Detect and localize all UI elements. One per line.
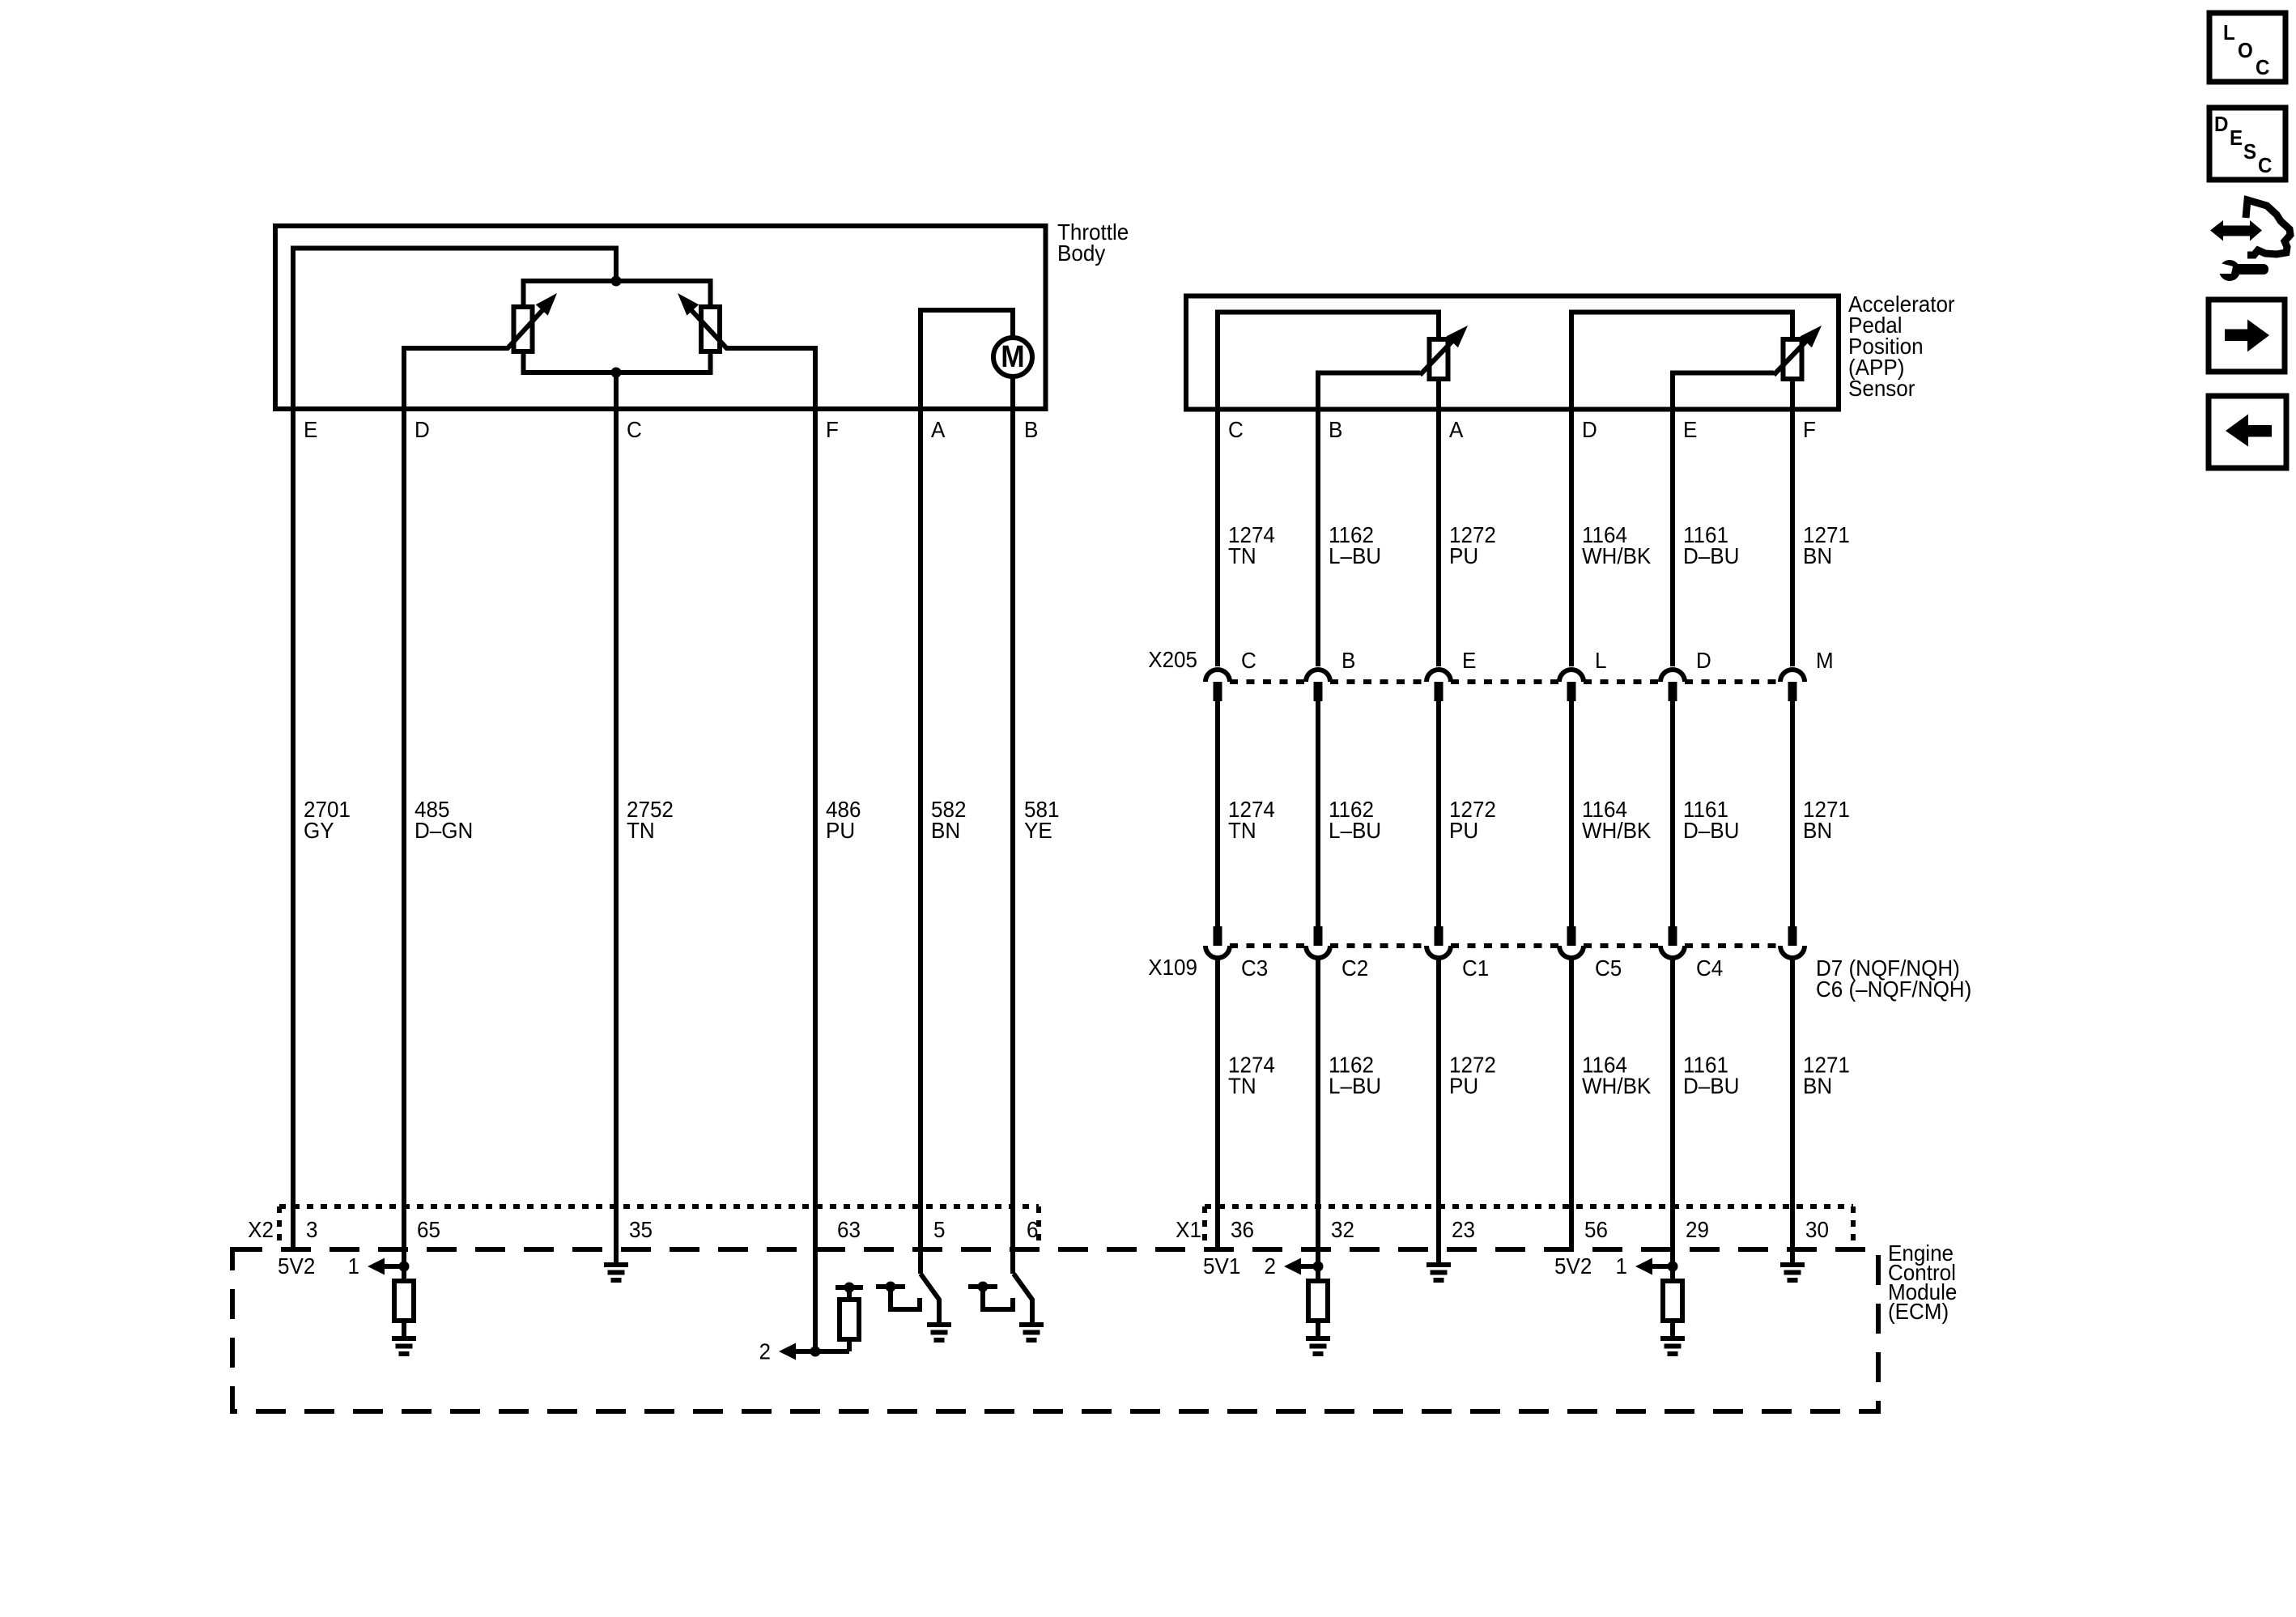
svg-text:M: M xyxy=(1001,339,1024,373)
svg-text:D: D xyxy=(1696,648,1711,673)
svg-text:C: C xyxy=(627,417,642,442)
svg-text:O: O xyxy=(2238,39,2253,62)
svg-text:F: F xyxy=(1803,417,1816,442)
svg-text:C3: C3 xyxy=(1241,955,1268,981)
svg-text:5V1: 5V1 xyxy=(1203,1253,1240,1279)
svg-text:PU: PU xyxy=(826,818,855,843)
svg-text:D–BU: D–BU xyxy=(1683,818,1739,843)
svg-text:WH/BK: WH/BK xyxy=(1582,818,1651,843)
svg-text:BN: BN xyxy=(1803,1074,1832,1099)
svg-text:WH/BK: WH/BK xyxy=(1582,543,1651,568)
svg-text:PU: PU xyxy=(1449,818,1478,843)
svg-text:BN: BN xyxy=(931,818,960,843)
svg-text:F: F xyxy=(826,417,839,442)
svg-text:D–BU: D–BU xyxy=(1683,543,1739,568)
svg-text:29: 29 xyxy=(1686,1217,1709,1242)
svg-text:2: 2 xyxy=(1265,1253,1276,1279)
svg-text:C2: C2 xyxy=(1341,955,1368,981)
svg-text:X2: X2 xyxy=(248,1217,274,1242)
svg-text:1: 1 xyxy=(1616,1253,1627,1279)
svg-text:D–BU: D–BU xyxy=(1683,1074,1739,1099)
svg-text:L: L xyxy=(2223,21,2235,45)
svg-text:35: 35 xyxy=(629,1217,653,1242)
svg-text:5V2: 5V2 xyxy=(278,1253,315,1279)
svg-text:BN: BN xyxy=(1803,818,1832,843)
svg-text:6: 6 xyxy=(1027,1217,1038,1242)
svg-text:C: C xyxy=(1241,648,1256,673)
svg-text:E: E xyxy=(1683,417,1697,442)
svg-text:D: D xyxy=(1582,417,1597,442)
svg-text:56: 56 xyxy=(1584,1217,1608,1242)
svg-text:C4: C4 xyxy=(1696,955,1723,981)
svg-text:E: E xyxy=(304,417,317,442)
svg-text:B: B xyxy=(1341,648,1355,673)
svg-text:PU: PU xyxy=(1449,543,1478,568)
svg-text:65: 65 xyxy=(417,1217,440,1242)
svg-text:63: 63 xyxy=(837,1217,861,1242)
svg-text:X205: X205 xyxy=(1148,647,1197,672)
svg-text:B: B xyxy=(1329,417,1342,442)
svg-text:C1: C1 xyxy=(1462,955,1489,981)
svg-text:1: 1 xyxy=(348,1253,359,1279)
svg-text:2: 2 xyxy=(759,1339,771,1364)
svg-text:TN: TN xyxy=(1228,1074,1256,1099)
svg-text:C: C xyxy=(2258,154,2272,177)
svg-text:BN: BN xyxy=(1803,543,1832,568)
svg-text:A: A xyxy=(1449,417,1463,442)
svg-text:A: A xyxy=(931,417,945,442)
svg-text:X109: X109 xyxy=(1148,955,1197,980)
svg-text:30: 30 xyxy=(1805,1217,1829,1242)
svg-text:X1: X1 xyxy=(1176,1217,1201,1242)
svg-text:E: E xyxy=(1462,648,1476,673)
svg-text:TN: TN xyxy=(1228,818,1256,843)
svg-text:WH/BK: WH/BK xyxy=(1582,1074,1651,1099)
svg-text:D–GN: D–GN xyxy=(415,818,473,843)
svg-text:TN: TN xyxy=(1228,543,1256,568)
svg-text:D: D xyxy=(415,417,430,442)
svg-text:L–BU: L–BU xyxy=(1329,543,1381,568)
svg-text:B: B xyxy=(1024,417,1038,442)
svg-text:YE: YE xyxy=(1024,818,1052,843)
svg-text:C5: C5 xyxy=(1595,955,1622,981)
svg-text:5V2: 5V2 xyxy=(1554,1253,1592,1279)
svg-text:PU: PU xyxy=(1449,1074,1478,1099)
svg-text:L: L xyxy=(1595,648,1606,673)
svg-text:E: E xyxy=(2230,126,2243,150)
svg-text:23: 23 xyxy=(1452,1217,1475,1242)
svg-text:32: 32 xyxy=(1331,1217,1354,1242)
svg-text:Sensor: Sensor xyxy=(1848,376,1915,401)
svg-text:L–BU: L–BU xyxy=(1329,1074,1381,1099)
svg-text:Body: Body xyxy=(1057,240,1106,266)
svg-text:C6 (–NQF/NQH): C6 (–NQF/NQH) xyxy=(1816,977,1971,1002)
svg-text:3: 3 xyxy=(306,1217,317,1242)
svg-text:M: M xyxy=(1816,648,1834,673)
svg-text:(ECM): (ECM) xyxy=(1888,1299,1949,1324)
svg-text:TN: TN xyxy=(627,818,655,843)
svg-text:GY: GY xyxy=(304,818,334,843)
svg-text:L–BU: L–BU xyxy=(1329,818,1381,843)
svg-text:C: C xyxy=(2256,56,2269,79)
svg-text:D: D xyxy=(2214,113,2228,136)
svg-text:36: 36 xyxy=(1231,1217,1254,1242)
svg-text:S: S xyxy=(2243,140,2256,164)
svg-text:5: 5 xyxy=(933,1217,945,1242)
svg-text:C: C xyxy=(1228,417,1244,442)
